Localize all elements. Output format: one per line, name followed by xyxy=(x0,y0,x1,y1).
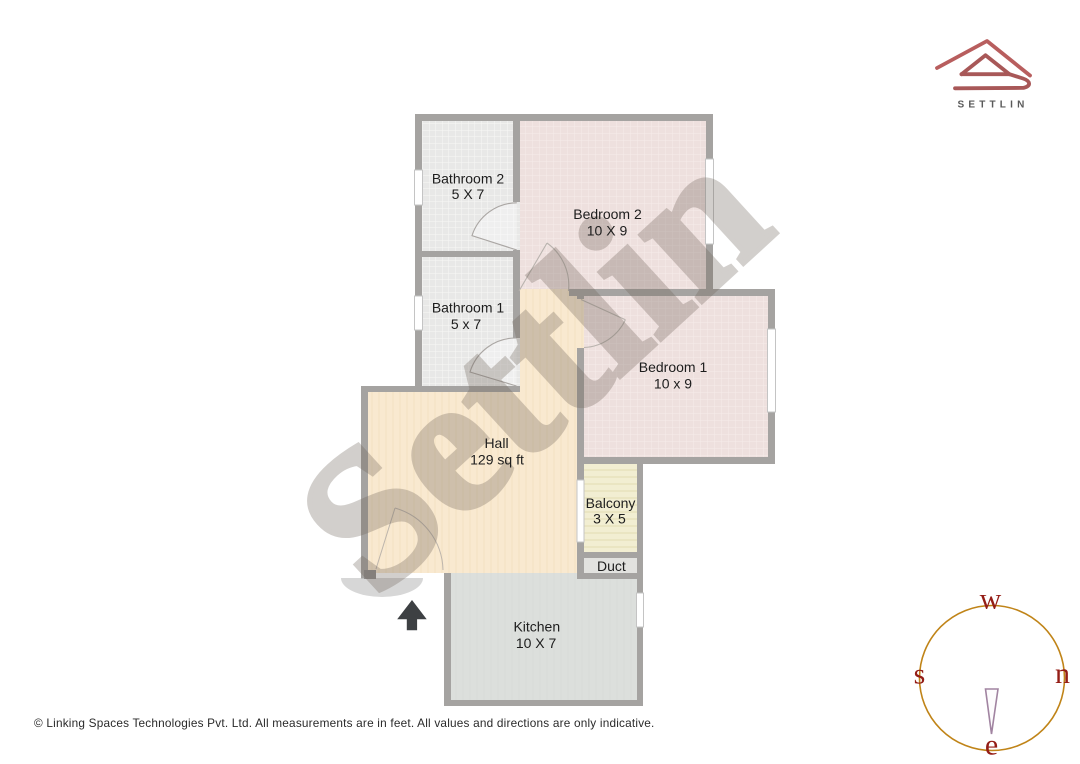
svg-text:129 sq ft: 129 sq ft xyxy=(470,452,524,468)
svg-text:10 x 9: 10 x 9 xyxy=(654,375,692,391)
svg-text:Hall: Hall xyxy=(484,435,508,451)
svg-text:n: n xyxy=(1055,657,1070,690)
svg-text:Bedroom 1: Bedroom 1 xyxy=(639,359,708,375)
svg-text:10 X 9: 10 X 9 xyxy=(587,223,628,239)
svg-text:w: w xyxy=(980,583,1002,616)
svg-text:5 X 7: 5 X 7 xyxy=(452,186,485,202)
svg-text:e: e xyxy=(985,729,998,762)
svg-text:Kitchen: Kitchen xyxy=(513,618,560,634)
svg-text:3 X 5: 3 X 5 xyxy=(593,511,626,527)
svg-text:Bedroom 2: Bedroom 2 xyxy=(573,206,642,222)
svg-text:SETTLIN: SETTLIN xyxy=(957,100,1028,111)
svg-text:Balcony: Balcony xyxy=(586,495,636,511)
svg-text:10 X 7: 10 X 7 xyxy=(516,635,557,651)
svg-text:Bathroom 2: Bathroom 2 xyxy=(432,171,505,187)
svg-text:5 x 7: 5 x 7 xyxy=(451,316,482,332)
svg-text:Duct: Duct xyxy=(597,558,626,574)
svg-text:Bathroom 1: Bathroom 1 xyxy=(432,299,505,315)
svg-text:© Linking Spaces Technologies: © Linking Spaces Technologies Pvt. Ltd. … xyxy=(34,716,655,730)
svg-text:s: s xyxy=(914,658,926,691)
